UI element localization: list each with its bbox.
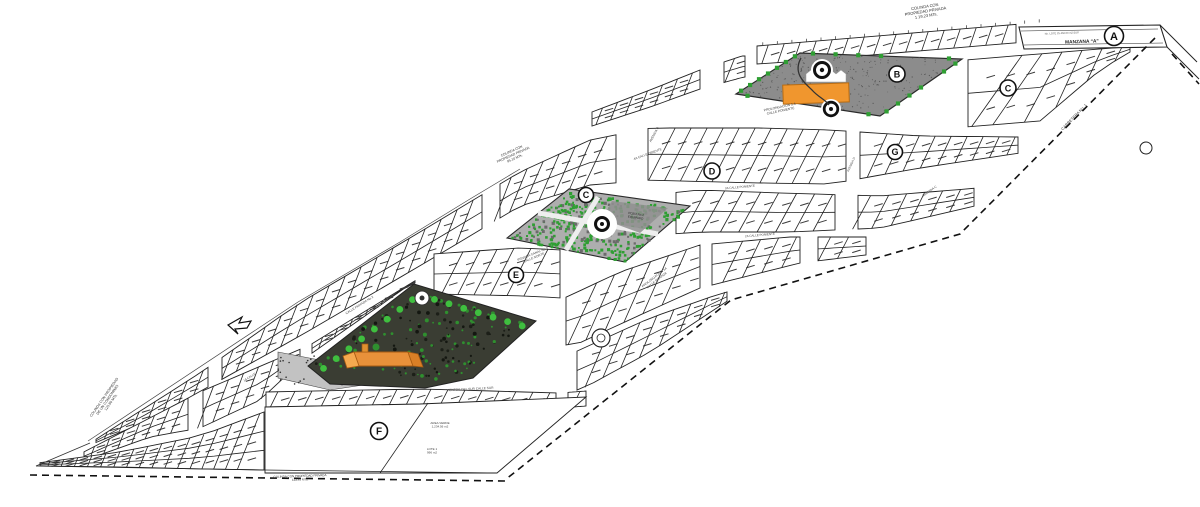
svg-text:1,234.56 m2: 1,234.56 m2 [432, 425, 449, 429]
svg-text:MANZANA “A”: MANZANA “A” [1065, 38, 1099, 45]
svg-text:123.45 MTs.: 123.45 MTs. [292, 477, 309, 482]
svg-text:D: D [709, 166, 716, 176]
svg-text:F: F [376, 427, 382, 438]
svg-text:A: A [1110, 31, 1118, 43]
svg-text:C: C [1005, 83, 1012, 93]
svg-text:E: E [513, 270, 519, 280]
svg-text:C: C [583, 190, 590, 200]
svg-text:996 m2: 996 m2 [427, 451, 437, 455]
svg-text:G: G [891, 147, 898, 157]
svg-text:B: B [894, 69, 901, 79]
